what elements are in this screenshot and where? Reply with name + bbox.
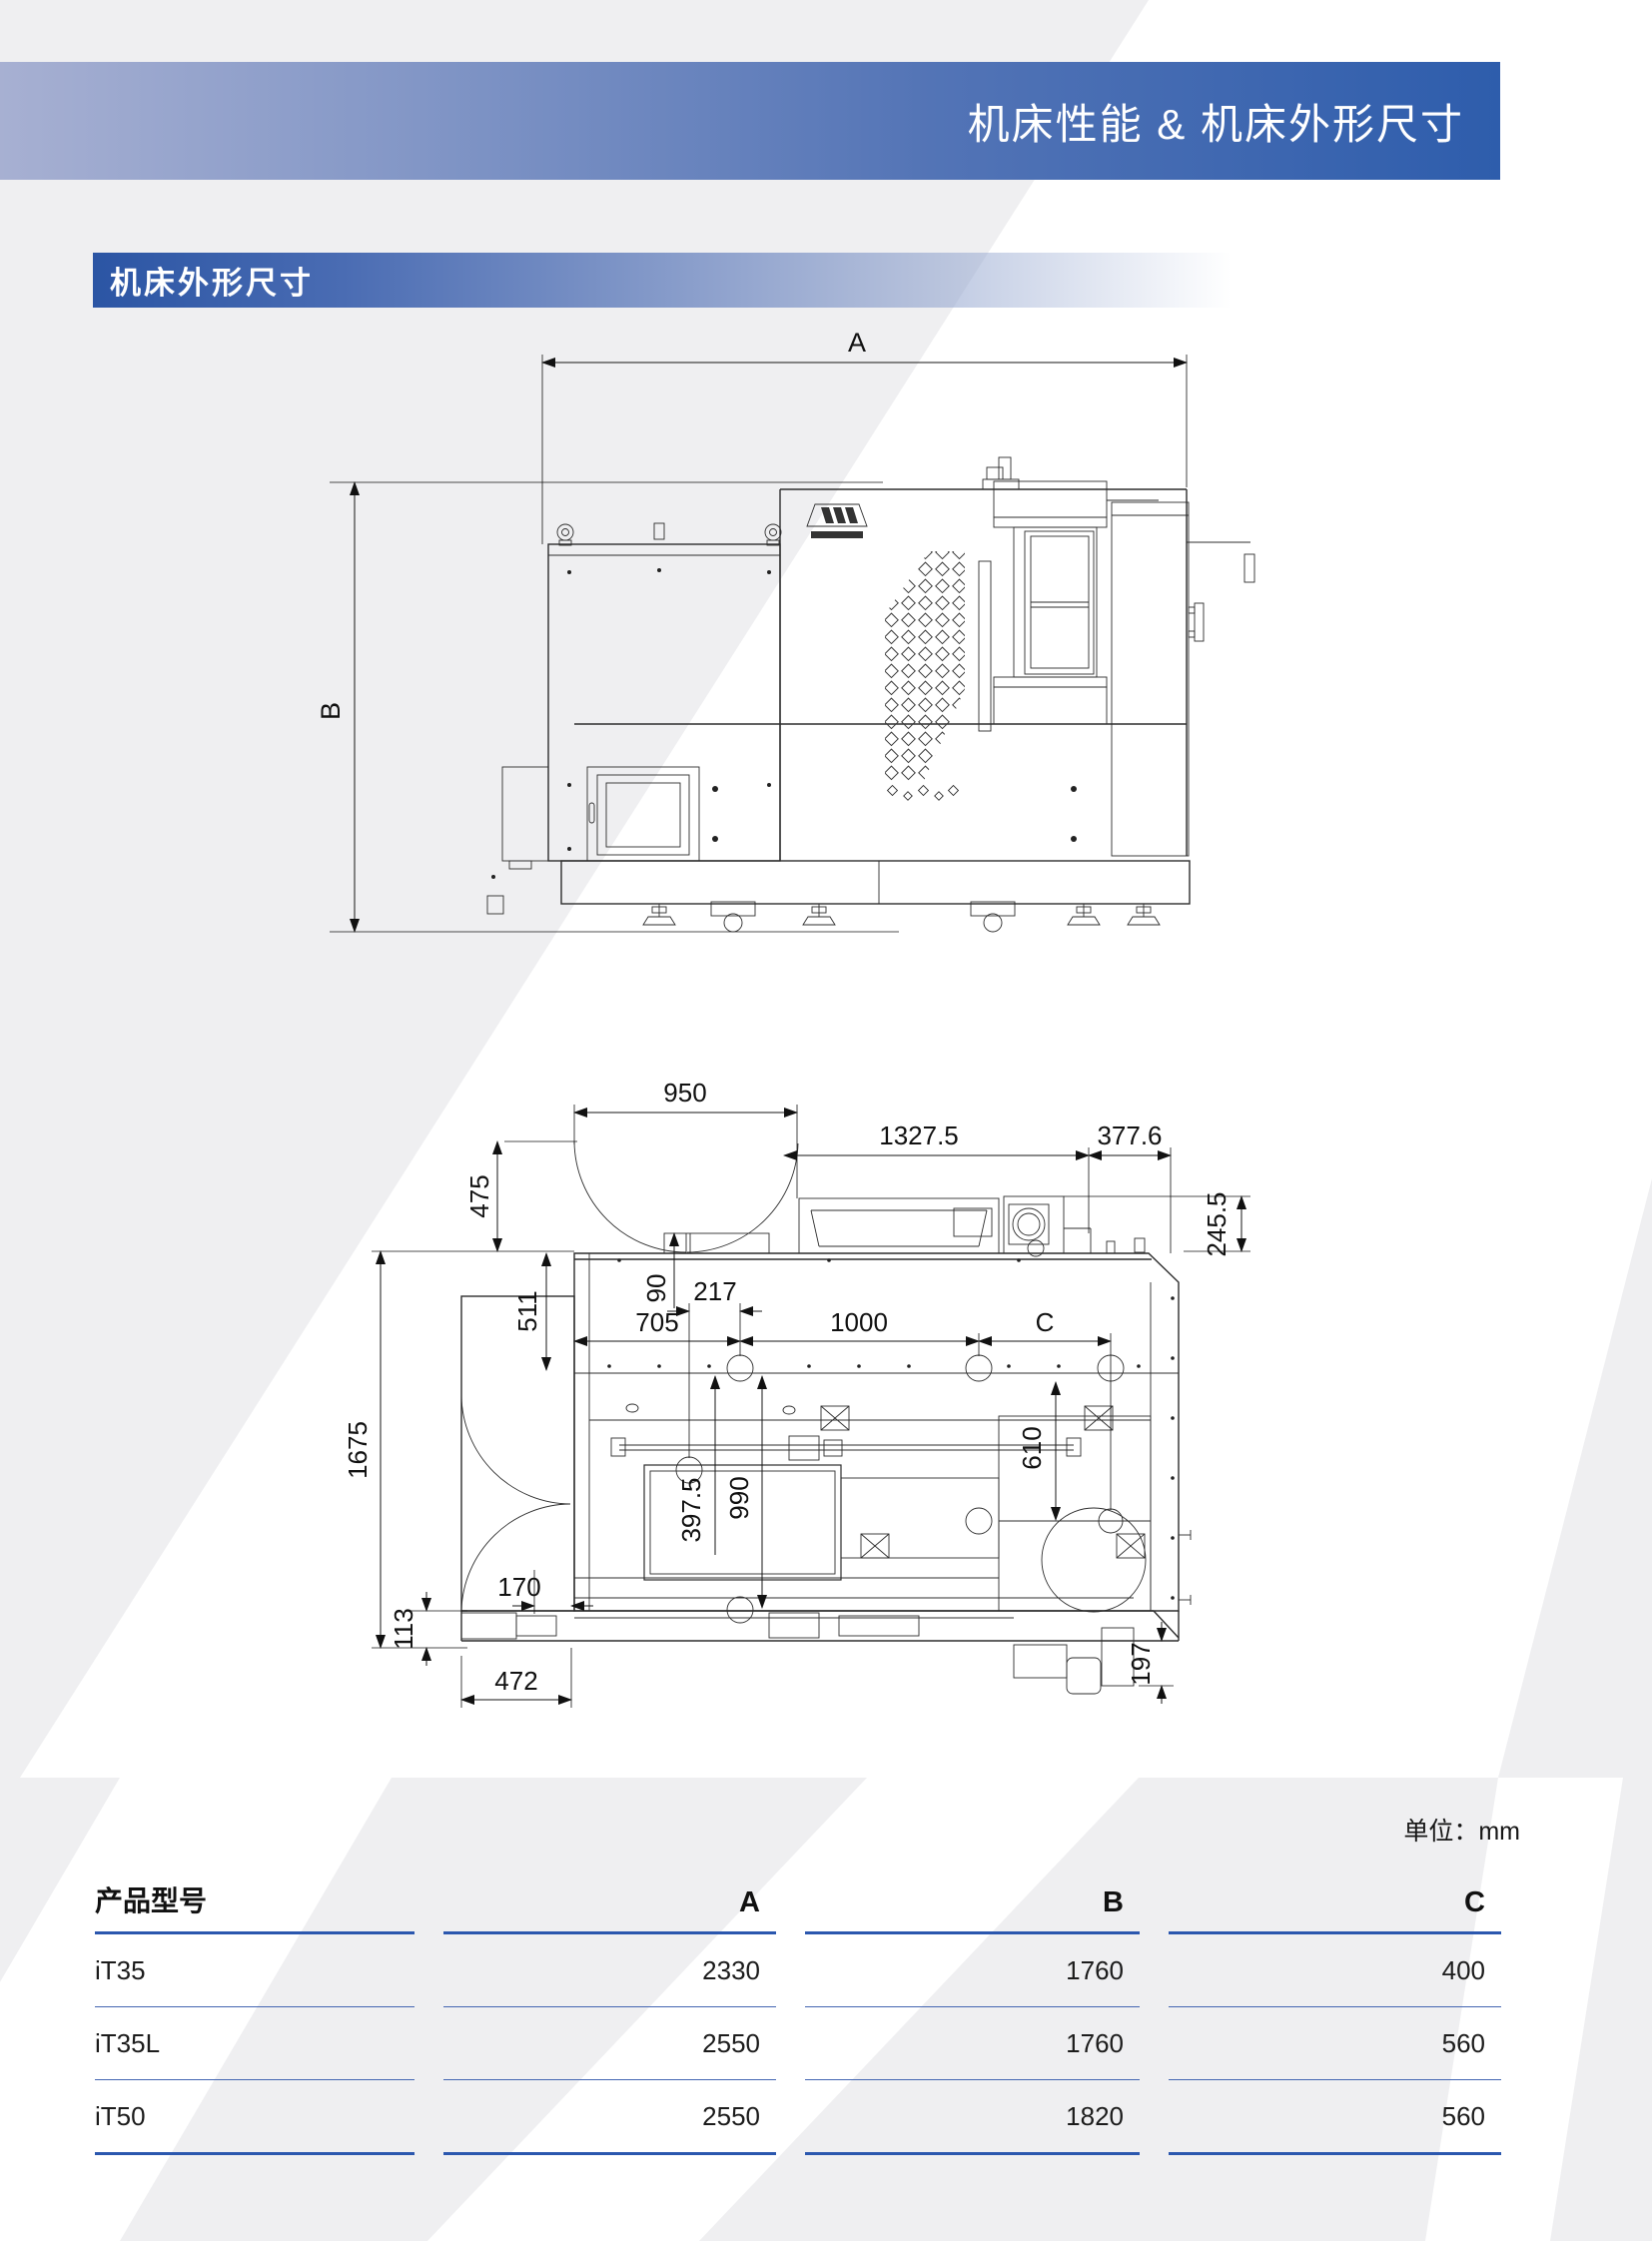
front-view-drawing: A B bbox=[316, 328, 1254, 932]
row-it35l-c: 560 bbox=[1169, 2007, 1501, 2080]
table-header-C: C bbox=[1169, 1850, 1501, 1934]
row-it50-a: 2550 bbox=[443, 2080, 776, 2155]
dim-113: 113 bbox=[389, 1608, 418, 1649]
dim-377-6: 377.6 bbox=[1097, 1120, 1162, 1150]
row-it35-b: 1760 bbox=[805, 1934, 1140, 2007]
dimension-table: 产品型号 A B C iT35 2330 1760 400 iT35L 2550… bbox=[95, 1850, 1501, 2155]
table-header-model: 产品型号 bbox=[95, 1850, 414, 1934]
row-it50-model: iT50 bbox=[95, 2080, 414, 2155]
dim-217: 217 bbox=[693, 1276, 736, 1306]
machine-brand-logo bbox=[807, 504, 867, 538]
dim-C: C bbox=[1036, 1307, 1055, 1337]
dim-511: 511 bbox=[512, 1290, 542, 1331]
front-dim-A bbox=[542, 355, 1187, 544]
front-dim-B bbox=[330, 482, 899, 932]
rear-units bbox=[799, 1196, 1145, 1256]
top-machine-outline bbox=[461, 1253, 1179, 1641]
lower-door bbox=[587, 767, 699, 861]
table-header-A: A bbox=[443, 1850, 776, 1934]
dim-1327-5: 1327.5 bbox=[879, 1120, 959, 1150]
dim-197: 197 bbox=[1126, 1642, 1156, 1685]
top-internals bbox=[461, 1253, 1191, 1694]
dim-950: 950 bbox=[663, 1078, 706, 1108]
top-view-drawing: 950 1327.5 377.6 475 245.5 90 217 705 10… bbox=[343, 1078, 1250, 1708]
dim-245-5: 245.5 bbox=[1202, 1191, 1232, 1256]
dim-1000: 1000 bbox=[830, 1307, 888, 1337]
row-it35-a: 2330 bbox=[443, 1934, 776, 2007]
dim-397-5: 397.5 bbox=[676, 1477, 706, 1542]
row-it35l-a: 2550 bbox=[443, 2007, 776, 2080]
dim-170: 170 bbox=[497, 1572, 540, 1602]
dim-1675: 1675 bbox=[343, 1421, 373, 1479]
row-it50-c: 560 bbox=[1169, 2080, 1501, 2155]
dim-705: 705 bbox=[635, 1307, 678, 1337]
row-it35-model: iT35 bbox=[95, 1934, 414, 2007]
dim-610: 610 bbox=[1017, 1426, 1047, 1469]
vent-stray-diamonds bbox=[888, 786, 959, 801]
dim-472: 472 bbox=[494, 1666, 537, 1696]
front-dim-A-label: A bbox=[848, 328, 866, 358]
row-it35l-b: 1760 bbox=[805, 2007, 1140, 2080]
operator-window bbox=[994, 481, 1107, 724]
dim-990: 990 bbox=[724, 1476, 754, 1519]
dim-475: 475 bbox=[464, 1174, 494, 1217]
vent-pattern bbox=[885, 551, 965, 781]
units-note: 单位：mm bbox=[1403, 1812, 1520, 1848]
top-view-dims bbox=[372, 1105, 1250, 1708]
catalog-page: { "header": { "title": "机床性能 & 机床外形尺寸" }… bbox=[0, 0, 1652, 2241]
front-dim-B-label: B bbox=[316, 702, 346, 720]
front-door-arcs bbox=[574, 1141, 798, 1253]
dim-90: 90 bbox=[641, 1274, 671, 1303]
chip-conveyor bbox=[1014, 1628, 1134, 1694]
row-it50-b: 1820 bbox=[805, 2080, 1140, 2155]
machine-feet bbox=[643, 902, 1160, 932]
row-it35l-model: iT35L bbox=[95, 2007, 414, 2080]
row-it35-c: 400 bbox=[1169, 1934, 1501, 2007]
table-header-B: B bbox=[805, 1850, 1140, 1934]
guide-trucks bbox=[821, 1406, 1145, 1558]
